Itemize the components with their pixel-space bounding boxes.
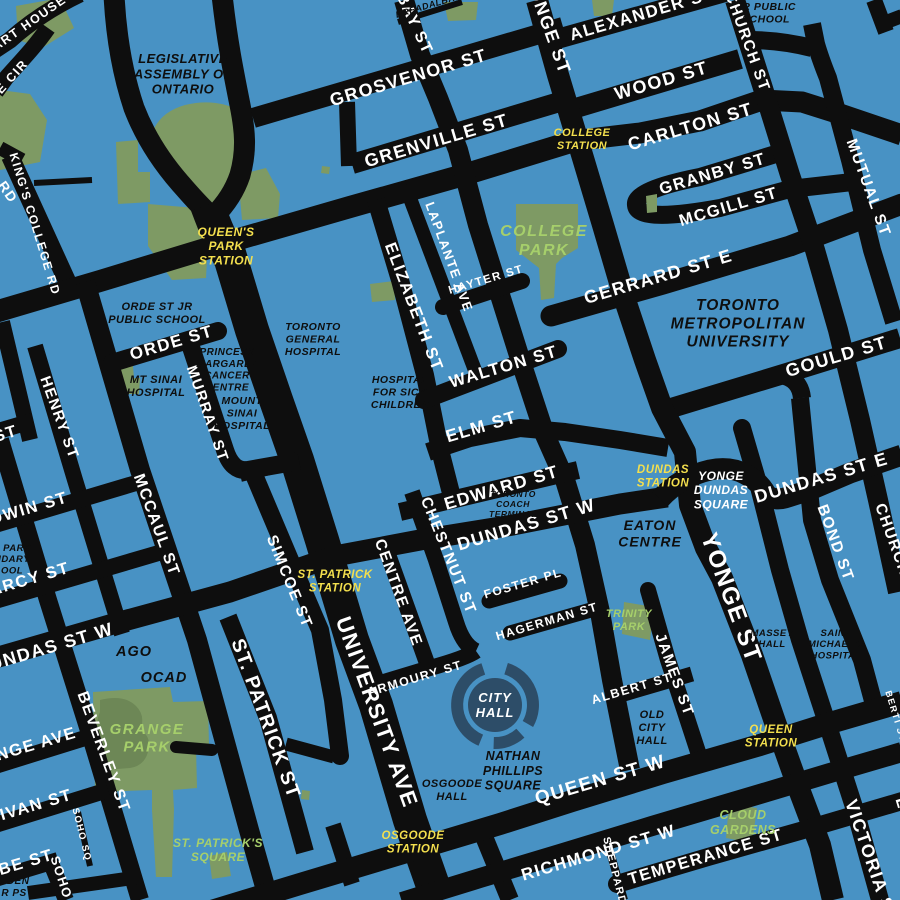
svg-text:COLLEGE: COLLEGE (554, 127, 611, 139)
svg-text:OCAD: OCAD (141, 670, 188, 686)
svg-text:DUNDAS: DUNDAS (637, 464, 689, 476)
svg-text:HALL: HALL (436, 791, 467, 803)
svg-text:COACH: COACH (496, 499, 530, 509)
svg-text:HOSPITAL: HOSPITAL (214, 420, 270, 432)
svg-text:ASSEMBLY OF: ASSEMBLY OF (133, 66, 233, 81)
svg-text:TORONTO: TORONTO (490, 489, 536, 499)
svg-text:COLLEGE: COLLEGE (500, 223, 588, 240)
svg-text:MICHAEL'S: MICHAEL'S (808, 639, 865, 650)
svg-text:SQUARE: SQUARE (694, 497, 749, 511)
svg-text:AGO: AGO (115, 644, 152, 660)
svg-text:PARK: PARK (208, 239, 244, 253)
svg-text:CHILDREN: CHILDREN (371, 399, 429, 411)
svg-text:STATION: STATION (199, 253, 253, 267)
svg-text:NATHAN: NATHAN (486, 749, 541, 763)
svg-text:DUNDAS: DUNDAS (694, 483, 748, 497)
svg-text:SQUARE: SQUARE (191, 850, 246, 864)
svg-text:CENTRE: CENTRE (618, 534, 682, 550)
svg-text:OOL: OOL (1, 565, 23, 576)
svg-text:ORDE ST JR: ORDE ST JR (121, 301, 192, 313)
svg-text:NDARY: NDARY (0, 554, 31, 565)
svg-text:LEGISLATIVE: LEGISLATIVE (138, 51, 228, 66)
svg-text:STATION: STATION (745, 738, 797, 750)
svg-text:MOUNT: MOUNT (222, 395, 264, 407)
svg-text:STATION: STATION (557, 140, 608, 152)
svg-text:HOSPITAL: HOSPITAL (127, 387, 186, 399)
svg-text:SAINT: SAINT (821, 628, 853, 639)
svg-text:OSGOODE: OSGOODE (382, 830, 445, 842)
svg-text:CITY: CITY (638, 722, 666, 734)
svg-text:GARDENS: GARDENS (710, 823, 776, 837)
svg-text:PHILLIPS: PHILLIPS (483, 764, 543, 778)
svg-text:MASSEY: MASSEY (750, 628, 794, 639)
svg-text:ST. PATRICK'S: ST. PATRICK'S (173, 836, 263, 850)
svg-text:CENTRE: CENTRE (205, 382, 249, 393)
svg-text:TERMINAL: TERMINAL (489, 509, 537, 519)
svg-text:PUBLIC SCHOOL: PUBLIC SCHOOL (108, 314, 206, 326)
svg-text:GENERAL: GENERAL (286, 333, 341, 345)
svg-text:HALL: HALL (636, 735, 667, 747)
svg-text:GRANGE: GRANGE (110, 721, 185, 738)
svg-text:QUEEN'S: QUEEN'S (197, 225, 254, 239)
svg-text:JR PUBLIC: JR PUBLIC (736, 1, 796, 13)
svg-text:CANCER: CANCER (204, 371, 250, 382)
svg-text:HOSPITAL: HOSPITAL (810, 650, 861, 661)
svg-text:HOSPITAL: HOSPITAL (285, 346, 341, 358)
svg-text:GDEN: GDEN (0, 876, 30, 887)
svg-text:PARK: PARK (123, 739, 170, 756)
svg-text:UNIVERSITY: UNIVERSITY (686, 334, 790, 351)
svg-text:R PS: R PS (1, 888, 26, 899)
svg-text:QUEEN: QUEEN (749, 724, 793, 736)
svg-text:SQUARE: SQUARE (485, 779, 542, 793)
svg-text:PARK: PARK (519, 242, 569, 259)
svg-text:SCHOOL: SCHOOL (742, 13, 790, 25)
svg-text:ONTARIO: ONTARIO (152, 82, 214, 97)
svg-text:ST. PATRICK: ST. PATRICK (297, 569, 372, 581)
svg-text:HALL: HALL (758, 639, 785, 650)
svg-text:HOSPITAL: HOSPITAL (372, 374, 428, 386)
svg-text:STATION: STATION (637, 478, 689, 490)
svg-text:HALL: HALL (476, 705, 515, 720)
svg-text:OLD: OLD (640, 709, 665, 721)
svg-text:TORONTO: TORONTO (696, 297, 780, 314)
svg-text:YONGE: YONGE (698, 469, 744, 483)
svg-text:STATION: STATION (309, 583, 361, 595)
svg-text:TORONTO: TORONTO (285, 321, 341, 333)
svg-text:PRINCESS: PRINCESS (199, 347, 254, 358)
svg-text:METROPOLITAN: METROPOLITAN (671, 315, 806, 332)
svg-text:PARK: PARK (613, 621, 646, 633)
svg-text:FOR SICK: FOR SICK (373, 386, 428, 398)
svg-text:MARGARET: MARGARET (196, 359, 258, 370)
svg-text:MT SINAI: MT SINAI (130, 374, 183, 386)
svg-text:CITY: CITY (478, 690, 512, 705)
svg-text:N PARK: N PARK (0, 543, 32, 554)
svg-text:EATON: EATON (624, 517, 677, 533)
svg-text:OSGOODE: OSGOODE (422, 778, 483, 790)
svg-text:TRINITY: TRINITY (606, 608, 653, 620)
svg-text:SINAI: SINAI (227, 407, 258, 419)
svg-text:CLOUD: CLOUD (720, 808, 767, 822)
svg-text:STATION: STATION (387, 844, 439, 856)
